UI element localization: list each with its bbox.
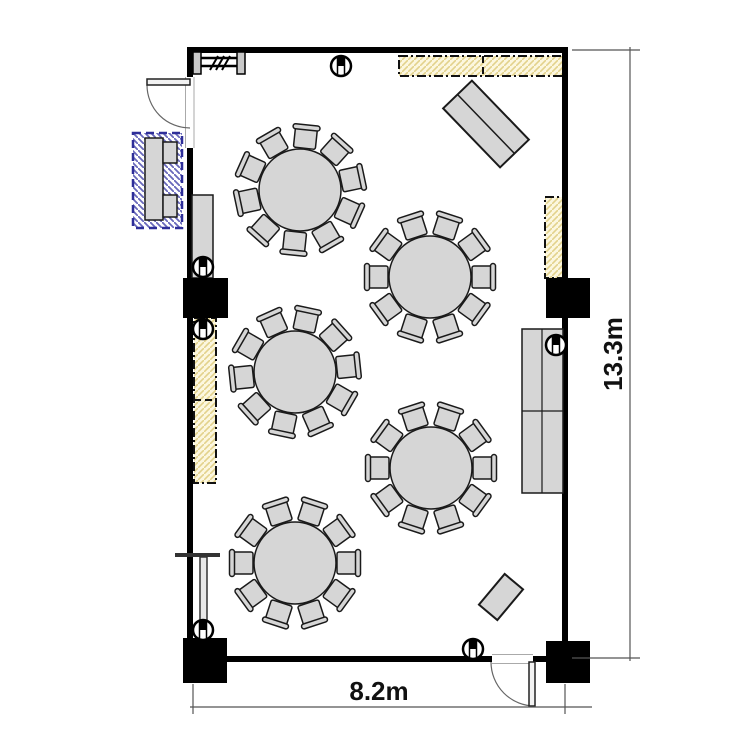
door-leaf xyxy=(147,79,190,85)
small-table xyxy=(479,574,523,620)
chair-seat xyxy=(337,552,357,574)
round-table-group xyxy=(230,496,361,629)
dimension-width-label: 8.2m xyxy=(349,676,408,706)
floor-plan: 8.2m 13.3m xyxy=(0,0,750,750)
marker-fill xyxy=(470,640,477,650)
chair xyxy=(337,550,361,577)
marker-fill xyxy=(200,621,207,631)
chair xyxy=(335,352,361,381)
counter-top xyxy=(145,138,163,220)
door-swing-arc xyxy=(147,85,190,128)
window-partition xyxy=(193,52,245,74)
banquet-tables xyxy=(228,123,496,629)
square-column xyxy=(546,278,590,318)
door-opening xyxy=(186,77,195,148)
chair xyxy=(472,264,496,291)
dimension-height-label: 13.3m xyxy=(598,317,628,391)
chair xyxy=(291,305,322,334)
door-opening xyxy=(492,655,533,664)
chair-backrest xyxy=(365,264,370,291)
round-table xyxy=(259,149,341,231)
round-column-marker xyxy=(331,56,351,76)
chair-backrest xyxy=(366,455,371,482)
chair-seat xyxy=(369,457,389,479)
round-table xyxy=(390,427,472,509)
round-table xyxy=(254,331,336,413)
chair xyxy=(280,230,309,256)
marker-fill xyxy=(338,57,345,67)
marker-fill xyxy=(200,320,207,330)
round-table xyxy=(389,236,471,318)
floor-plan-drawing: 8.2m 13.3m xyxy=(0,0,750,750)
chair-backrest xyxy=(492,455,497,482)
counter-equipment xyxy=(163,195,177,217)
chair-seat xyxy=(233,552,253,574)
service-counter-area xyxy=(133,133,182,228)
round-table-group xyxy=(365,210,496,343)
round-column-marker xyxy=(546,335,566,355)
partition-post xyxy=(193,52,201,74)
round-column-marker xyxy=(193,319,213,339)
marker-fill xyxy=(200,258,207,268)
chair xyxy=(230,550,254,577)
square-column xyxy=(546,641,590,683)
round-table-group xyxy=(228,305,361,439)
chair xyxy=(291,123,320,149)
round-table-group xyxy=(366,401,497,534)
chair-backrest xyxy=(356,550,361,577)
chair xyxy=(473,455,497,482)
chair xyxy=(268,410,299,439)
chair-seat xyxy=(473,457,493,479)
round-table-group xyxy=(233,123,367,256)
small-table xyxy=(479,574,523,620)
chair xyxy=(366,455,390,482)
chair xyxy=(228,363,254,392)
chair-backrest xyxy=(491,264,496,291)
round-table xyxy=(254,522,336,604)
hatched-zone xyxy=(399,56,564,76)
chair xyxy=(338,163,367,194)
square-column xyxy=(183,638,227,683)
counter-equipment xyxy=(163,142,177,163)
buffet-table xyxy=(443,81,529,168)
round-column-marker xyxy=(193,620,213,640)
chair-seat xyxy=(368,266,388,288)
chair xyxy=(233,186,262,217)
chair xyxy=(365,264,389,291)
marker-fill xyxy=(553,336,560,346)
door-leaf xyxy=(529,662,535,706)
flipchart-stand xyxy=(175,555,220,623)
square-column xyxy=(183,278,228,318)
round-column-marker xyxy=(193,257,213,277)
chair-backrest xyxy=(230,550,235,577)
stand-pole xyxy=(200,557,207,623)
chair-seat xyxy=(472,266,492,288)
round-column-marker xyxy=(463,639,483,659)
partition-post xyxy=(237,52,245,74)
